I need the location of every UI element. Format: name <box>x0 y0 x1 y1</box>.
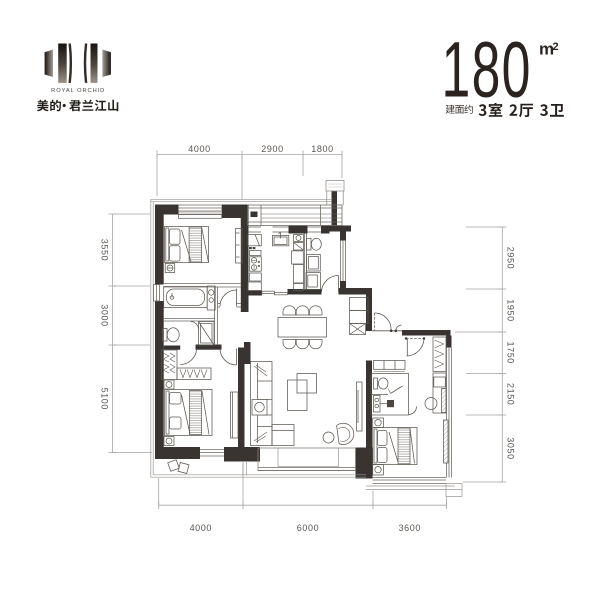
svg-text:4000: 4000 <box>188 144 210 154</box>
svg-text:2950: 2950 <box>506 247 516 269</box>
svg-text:180: 180 <box>442 27 532 115</box>
svg-text:1750: 1750 <box>506 341 516 363</box>
svg-text:6000: 6000 <box>297 523 319 533</box>
svg-text:3000: 3000 <box>100 304 110 326</box>
svg-text:4000: 4000 <box>190 523 212 533</box>
svg-text:3550: 3550 <box>100 239 110 261</box>
svg-text:2150: 2150 <box>506 383 516 405</box>
svg-text:5100: 5100 <box>100 388 110 410</box>
svg-text:2: 2 <box>553 41 559 53</box>
svg-text:3050: 3050 <box>506 437 516 459</box>
svg-text:3600: 3600 <box>399 523 421 533</box>
svg-text:1950: 1950 <box>506 299 516 321</box>
svg-text:1800: 1800 <box>311 144 333 154</box>
svg-text:ROYAL ORCHID: ROYAL ORCHID <box>51 88 105 94</box>
svg-text:2900: 2900 <box>261 144 283 154</box>
